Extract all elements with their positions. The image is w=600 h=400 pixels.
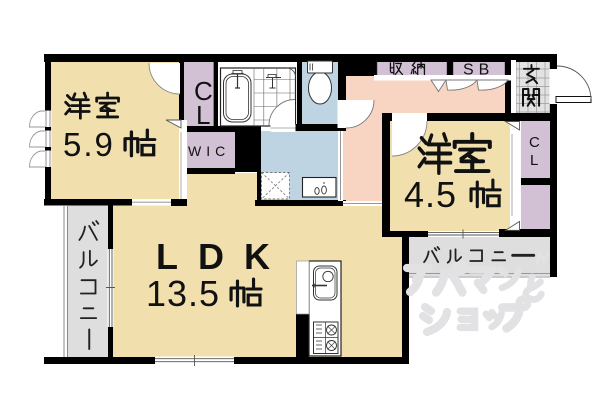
svg-text:L: L [196, 100, 210, 130]
svg-text:4.5: 4.5 [404, 174, 457, 215]
svg-text:WIC: WIC [188, 143, 230, 159]
svg-text:5.9: 5.9 [63, 126, 115, 163]
svg-text:L: L [530, 152, 538, 169]
svg-text:13.5: 13.5 [146, 273, 220, 314]
svg-text:LDK: LDK [156, 236, 290, 277]
svg-text:SB: SB [463, 62, 494, 79]
svg-text:C: C [529, 134, 540, 151]
